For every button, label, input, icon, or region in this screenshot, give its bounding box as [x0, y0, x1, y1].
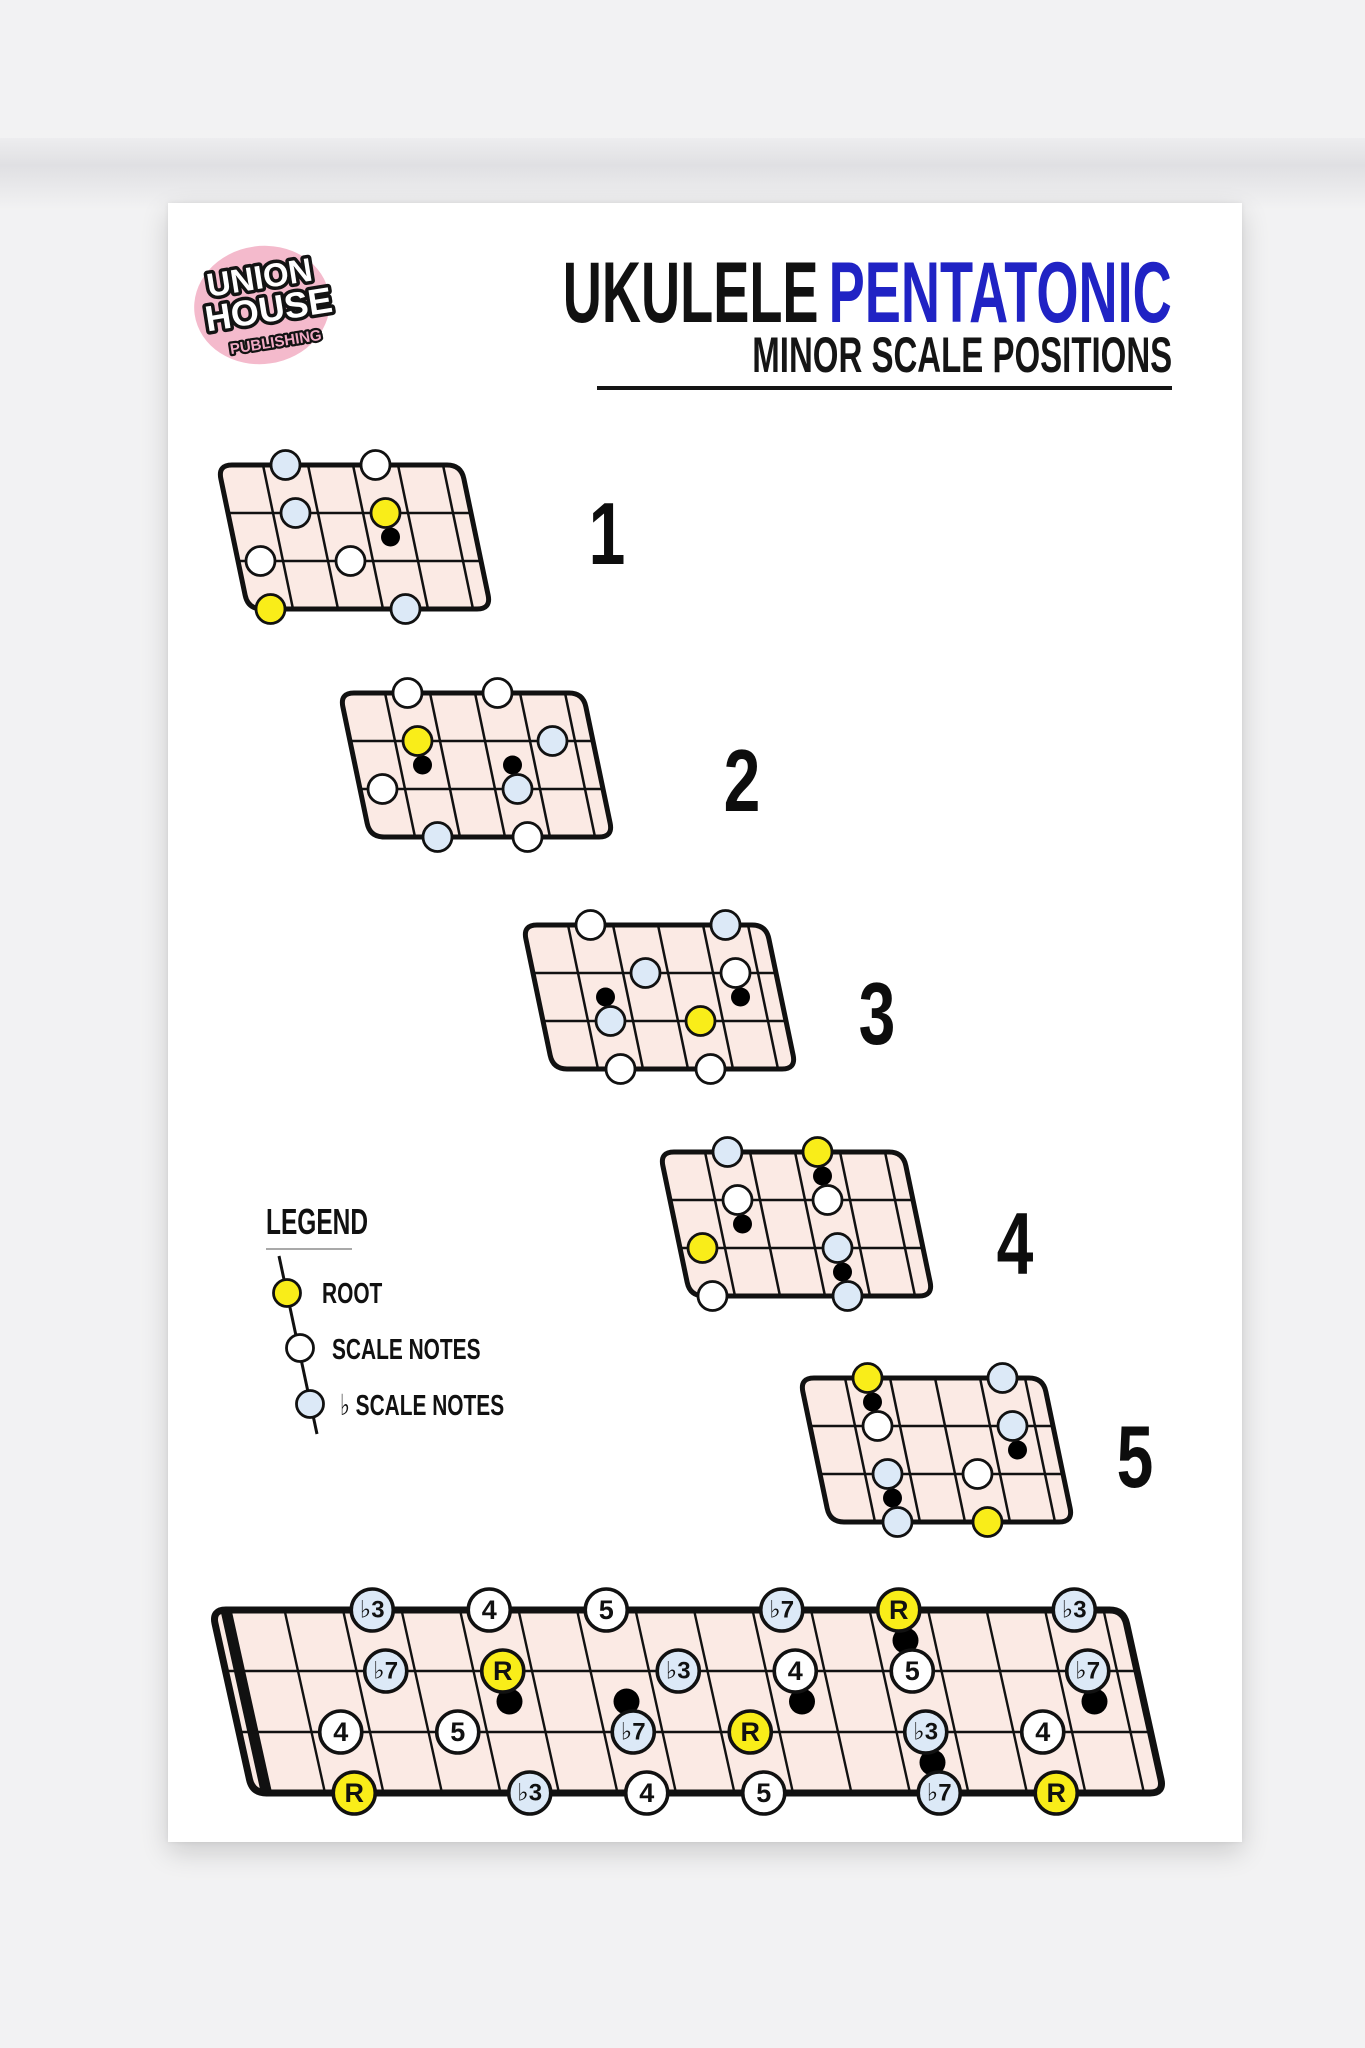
page-top-shading	[0, 138, 1365, 210]
legend-flat-dot	[297, 1391, 324, 1418]
position-2-board	[318, 671, 635, 864]
full-neck-note-label: R	[741, 1717, 761, 1747]
legend-label-root: ROOT	[322, 1280, 382, 1309]
position-5-number: 5	[1094, 1413, 1177, 1501]
position-3-board	[501, 903, 818, 1096]
title-underline	[597, 386, 1172, 390]
full-neck-note-label: ♭3	[913, 1719, 938, 1746]
position-1-number: 1	[566, 490, 649, 578]
full-neck-note-label: ♭3	[517, 1780, 542, 1807]
poster-subtitle: MINOR SCALE POSITIONS	[752, 330, 1172, 380]
full-neck-note-label: 5	[756, 1778, 771, 1808]
full-neck-note-label: 5	[905, 1656, 920, 1686]
full-neck-note-label: ♭7	[769, 1597, 794, 1624]
full-neck-note-label: ♭3	[360, 1597, 385, 1624]
full-neck-note-label: ♭7	[621, 1719, 646, 1746]
position-4-number: 4	[974, 1200, 1057, 1288]
full-neck-note-label: ♭7	[1075, 1658, 1100, 1685]
full-neck-note-label: 4	[1035, 1717, 1050, 1747]
position-3-number: 3	[836, 970, 919, 1058]
position-5-board	[778, 1356, 1095, 1549]
position-2-number: 2	[701, 737, 784, 825]
full-neck-note-label: 4	[333, 1717, 348, 1747]
full-neck-board: ♭345♭7R♭3♭7R♭345♭745♭7R♭34R♭345♭7R	[184, 1582, 1192, 1826]
legend-root-dot	[274, 1280, 301, 1307]
publisher-logo: UNION HOUSE PUBLISHING	[186, 236, 346, 376]
full-neck-note-label: 4	[788, 1656, 803, 1686]
full-neck-note-label: 4	[482, 1595, 497, 1625]
full-neck-note-label: R	[493, 1656, 513, 1686]
full-neck-note-label: R	[1047, 1778, 1067, 1808]
logo-text-art: UNION HOUSE PUBLISHING	[186, 236, 346, 376]
full-neck-note-label: R	[345, 1778, 365, 1808]
full-neck-note-label: ♭3	[1062, 1597, 1087, 1624]
full-neck-note-label: ♭7	[373, 1658, 398, 1685]
position-1-board	[196, 443, 513, 636]
legend-scale-dot	[287, 1335, 314, 1362]
legend-heading: LEGEND	[266, 1204, 368, 1240]
legend-label-scale: SCALE NOTES	[332, 1336, 481, 1365]
poster-title: UKULELEPENTATONIC	[563, 250, 1172, 336]
position-4-board	[638, 1130, 955, 1323]
full-neck-note-label: R	[889, 1595, 909, 1625]
legend-label-flat: ♭ SCALE NOTES	[340, 1392, 504, 1421]
full-neck-note-label: ♭7	[927, 1780, 952, 1807]
full-neck-note-label: 4	[639, 1778, 654, 1808]
full-neck-note-label: 5	[450, 1717, 465, 1747]
full-neck-note-label: ♭3	[666, 1658, 691, 1685]
full-neck-note-label: 5	[599, 1595, 614, 1625]
